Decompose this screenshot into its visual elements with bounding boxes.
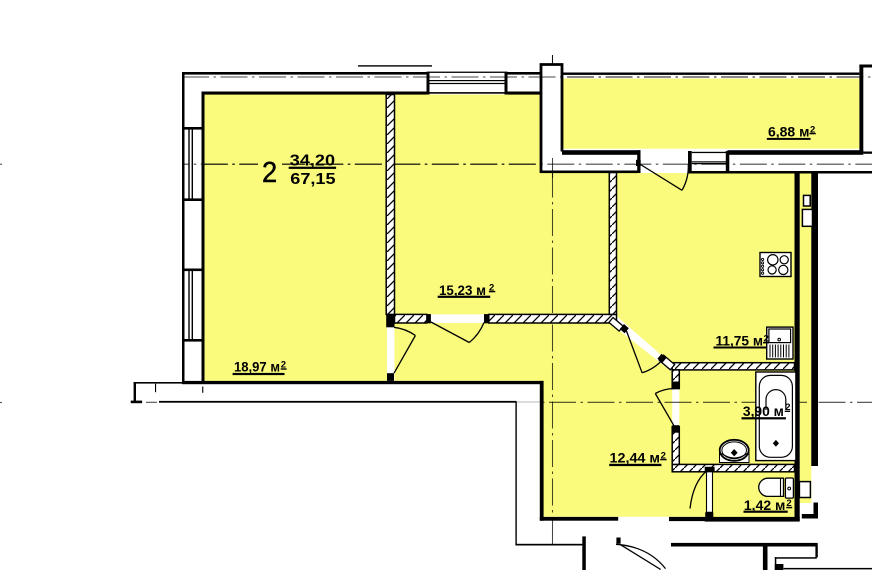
svg-text:67,15: 67,15 bbox=[290, 171, 335, 188]
svg-text:6,88 м: 6,88 м bbox=[768, 123, 809, 139]
svg-text:3,90 м: 3,90 м bbox=[743, 403, 784, 419]
svg-text:18,97 м: 18,97 м bbox=[234, 359, 280, 375]
svg-text:12,44 м: 12,44 м bbox=[610, 449, 661, 465]
svg-text:15,23 м: 15,23 м bbox=[439, 282, 486, 298]
svg-text:1,42 м: 1,42 м bbox=[744, 497, 786, 513]
svg-text:2: 2 bbox=[262, 157, 277, 189]
svg-text:11,75 м: 11,75 м bbox=[716, 332, 764, 348]
